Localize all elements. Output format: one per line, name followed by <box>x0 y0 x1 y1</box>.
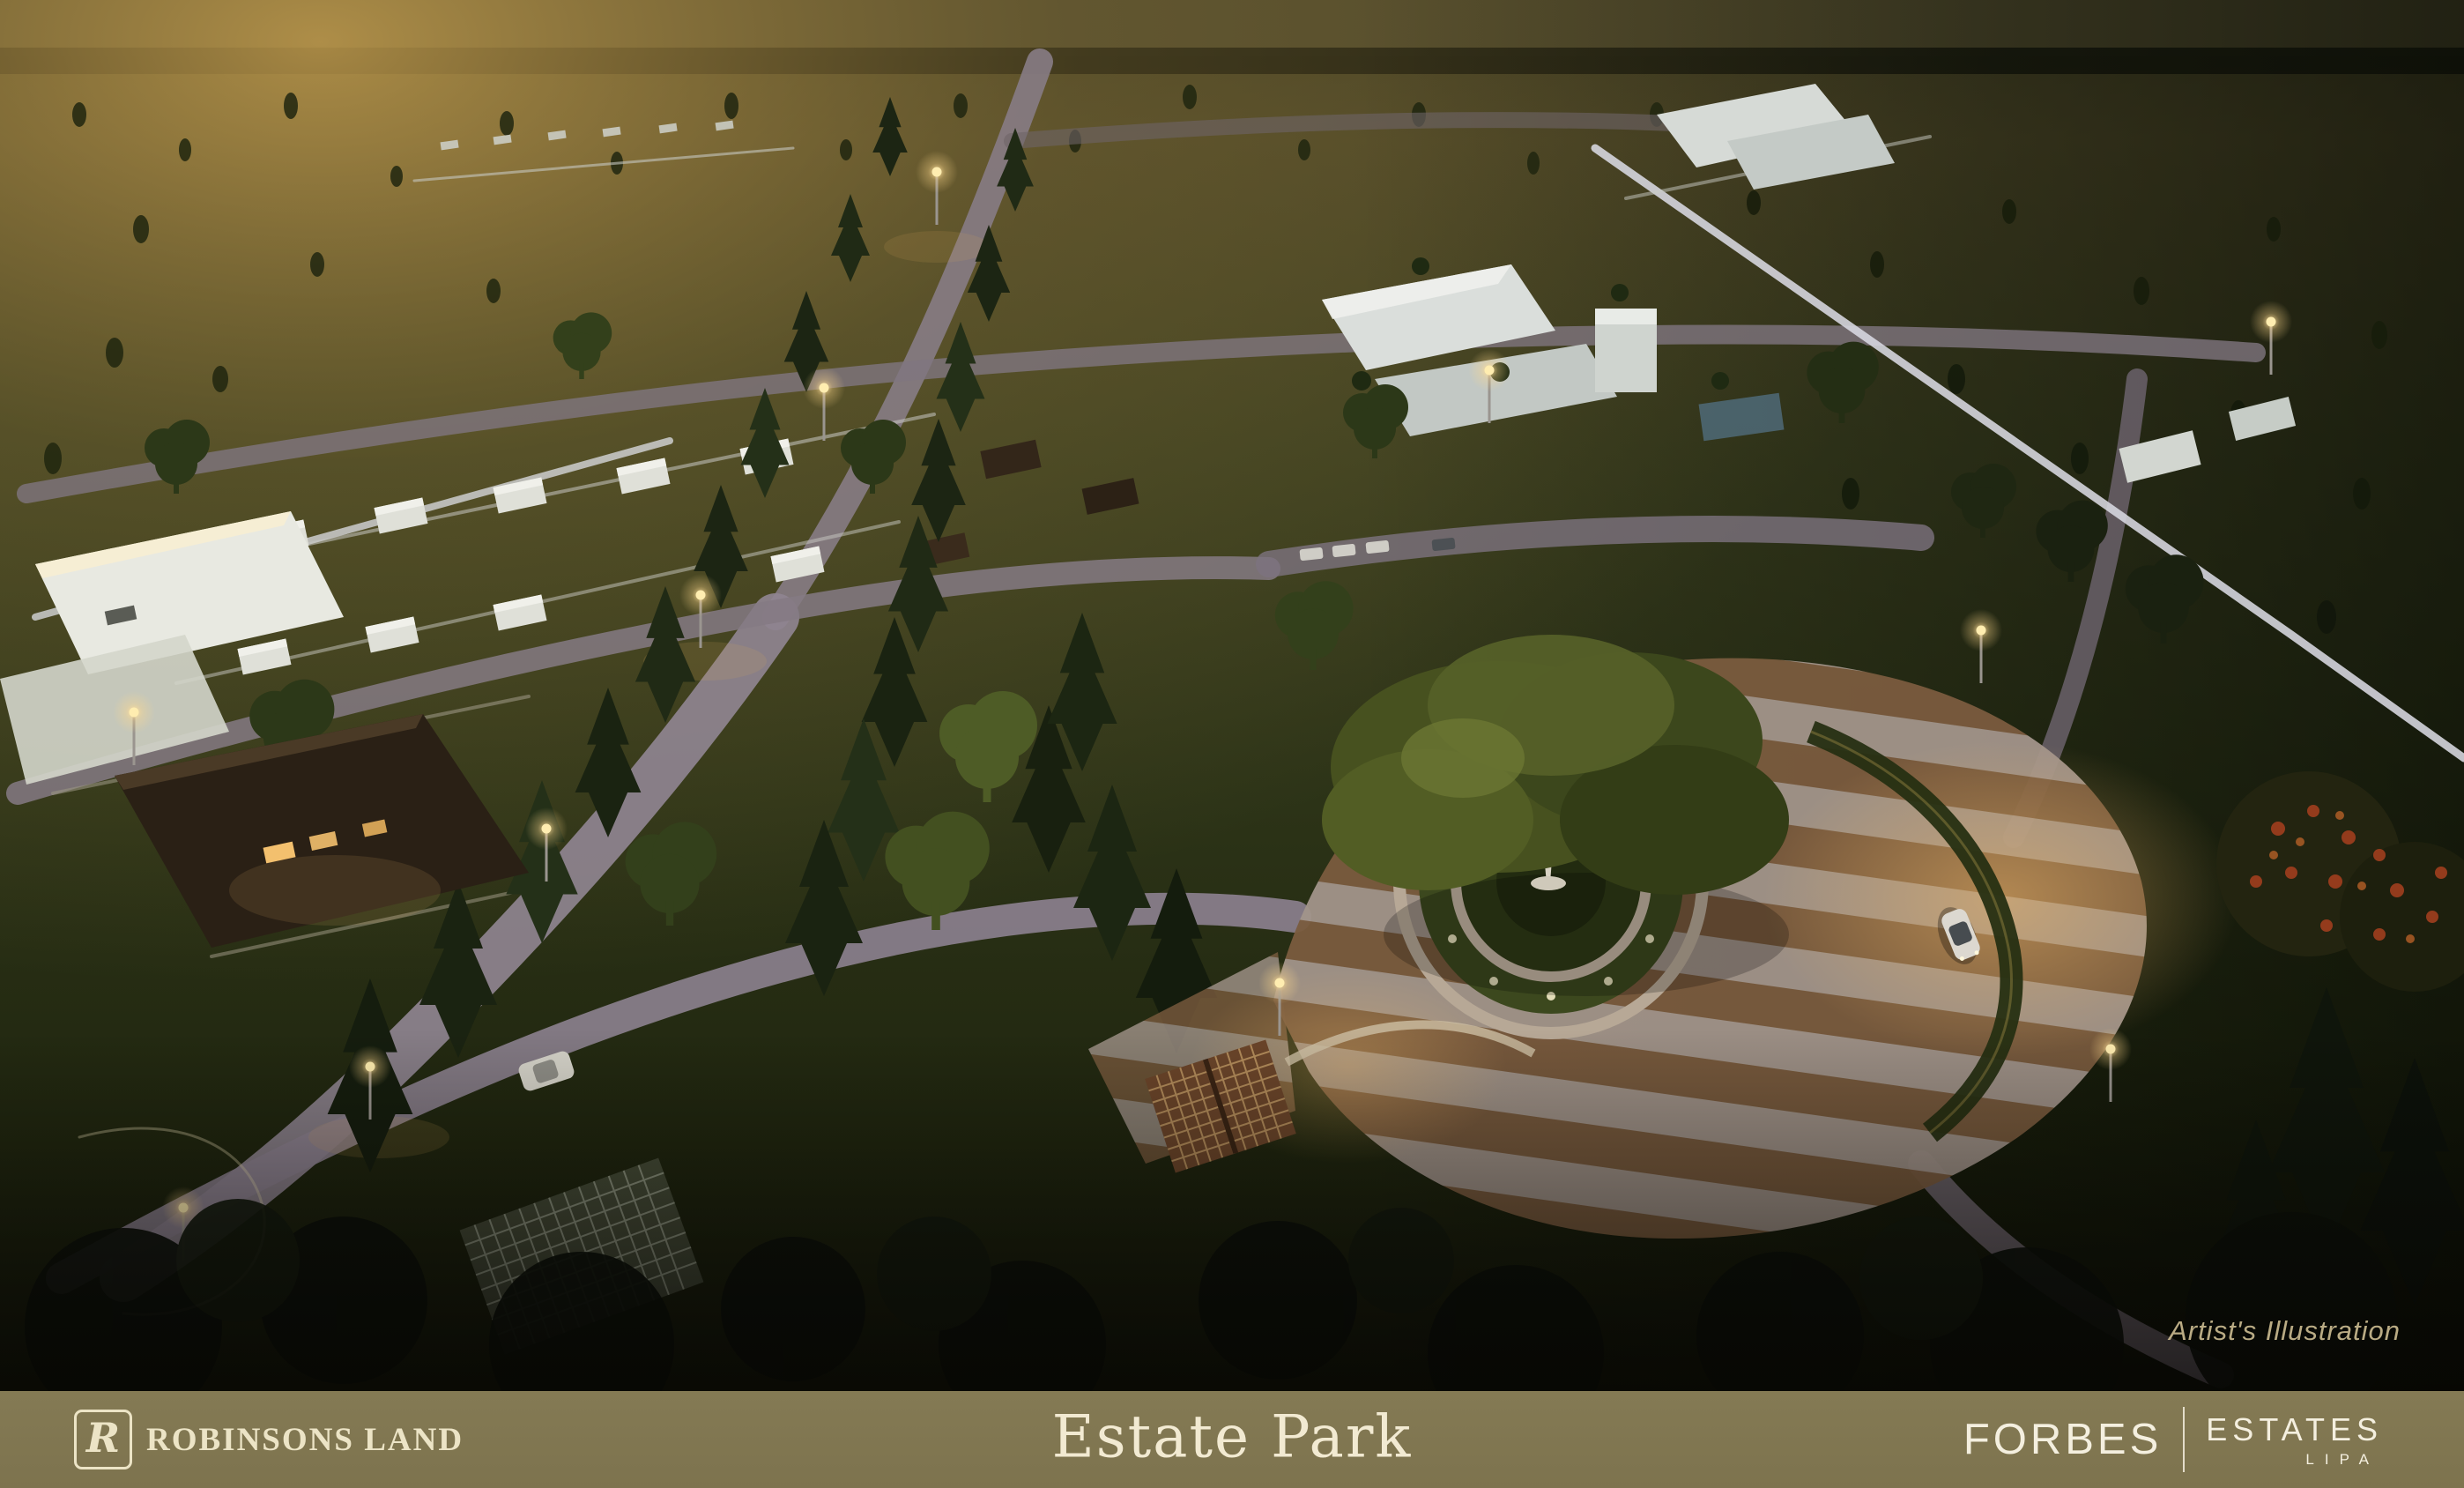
branding-footer-bar: R ROBINSONS LAND Estate Park FORBES ESTA… <box>0 1391 2464 1488</box>
estate-aerial-illustration: Artist's Illustration <box>0 0 2464 1391</box>
aerial-render <box>0 0 2464 1391</box>
brand-divider <box>2183 1407 2185 1472</box>
brand-secondary: ESTATES <box>2206 1411 2383 1448</box>
robinsons-land-logo-icon: R <box>74 1410 132 1469</box>
developer-name: ROBINSONS LAND <box>146 1421 464 1459</box>
artists-illustration-caption: Artist's Illustration <box>2169 1315 2401 1347</box>
logo-letter: R <box>86 1414 120 1462</box>
project-title: Estate Park <box>1052 1402 1413 1470</box>
forbes-estates-brand: FORBES ESTATES LIPA <box>1963 1391 2383 1488</box>
bottom-vignette <box>0 0 2464 1391</box>
brand-location: LIPA <box>2305 1451 2379 1469</box>
developer-brand: R ROBINSONS LAND <box>74 1391 464 1488</box>
brand-primary: FORBES <box>1963 1415 2162 1464</box>
